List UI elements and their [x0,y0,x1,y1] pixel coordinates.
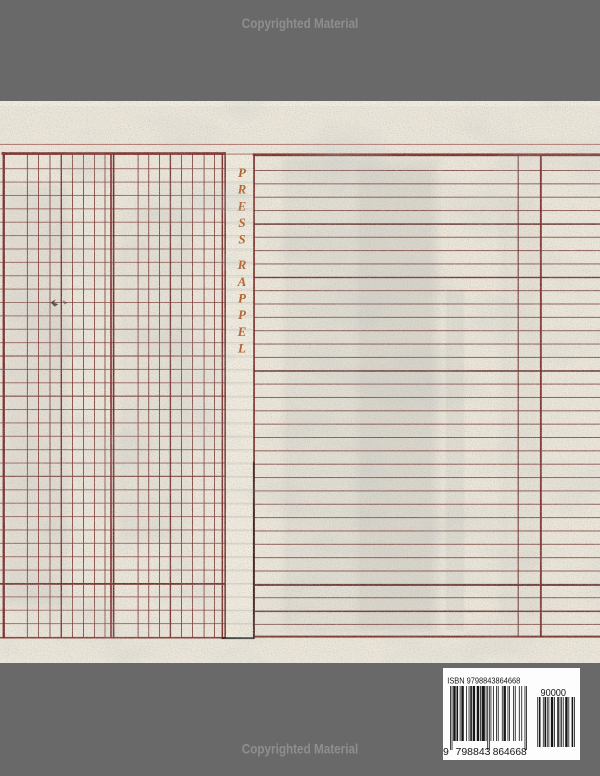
svg-text:90000: 90000 [541,688,567,699]
svg-text:ISBN 9798843864668: ISBN 9798843864668 [447,677,521,686]
svg-text:Copyrighted Material: Copyrighted Material [242,742,359,757]
